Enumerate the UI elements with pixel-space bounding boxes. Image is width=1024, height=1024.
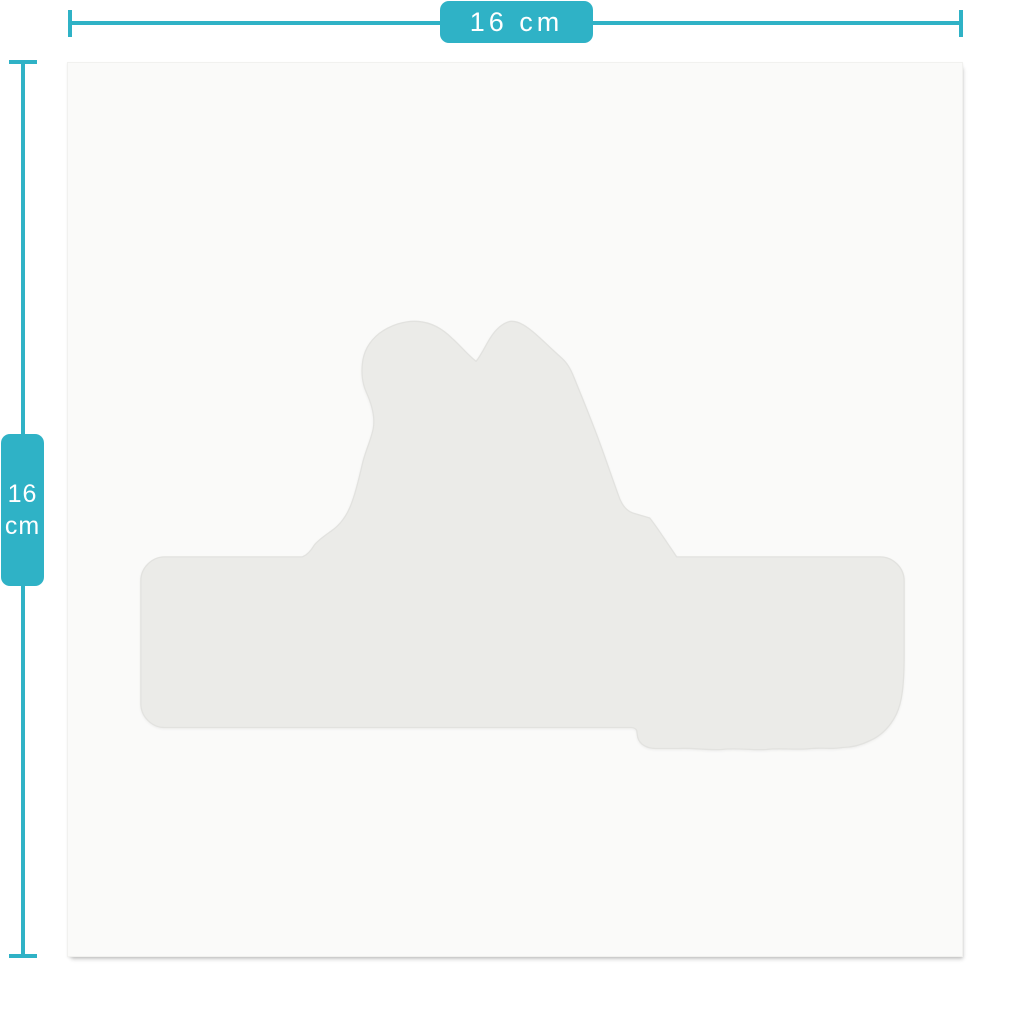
height-dimension-endcap-bottom: [9, 954, 37, 958]
width-dimension-label: 16 cm: [470, 7, 564, 38]
height-dimension-unit: cm: [5, 513, 40, 539]
sticker-sheet: [67, 62, 963, 957]
width-dimension-endcap-left: [68, 10, 72, 37]
die-cut-outline: [141, 321, 904, 749]
width-dimension-endcap-right: [959, 10, 963, 37]
height-dimension-endcap-top: [9, 60, 37, 64]
width-dimension-badge: 16 cm: [440, 1, 593, 43]
dog-silhouette-icon: [68, 63, 962, 956]
height-dimension-badge: 16 cm: [1, 434, 44, 586]
height-dimension-value: 16: [8, 481, 38, 507]
